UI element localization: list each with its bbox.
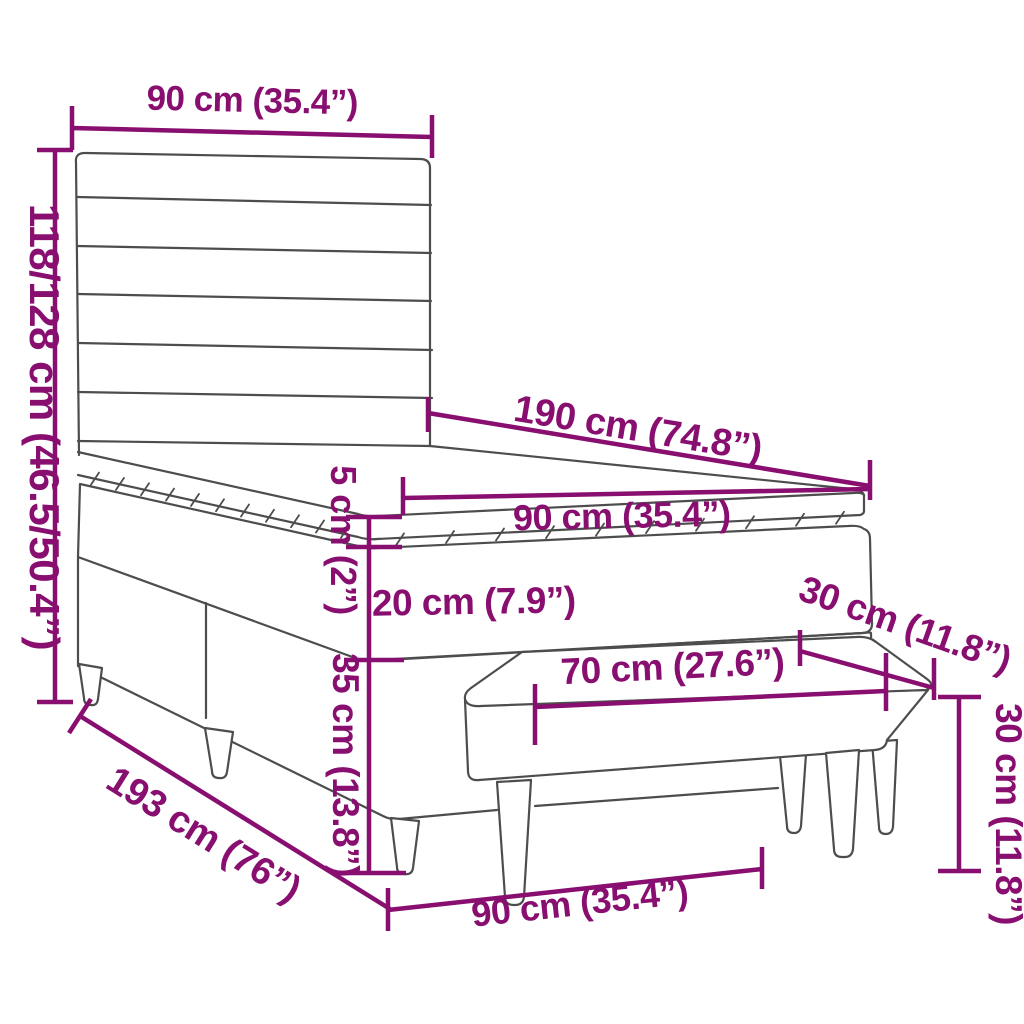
label-headboard-height: 118/128 cm (46.5/50.4”) [21,204,68,650]
bench-front-leg-right [826,750,859,857]
bench-front-leg-left [497,780,531,905]
label-bench-total-length: 90 cm (35.4”) [469,870,690,934]
bed-leg-middle [205,728,233,778]
label-topper-height: 5 cm (2”) [323,465,364,615]
label-bed-width: 90 cm (35.4”) [513,493,731,539]
topper-far-edge [430,446,864,495]
label-frame-length: 193 cm (76”) [99,759,308,911]
headboard-slats [77,197,432,446]
diagram-svg: 90 cm (35.4”) 118/128 cm (46.5/50.4”) 19… [0,0,1024,1024]
dimension-diagram: 90 cm (35.4”) 118/128 cm (46.5/50.4”) 19… [0,0,1024,1024]
bed-leg-corner [391,818,419,874]
base-bottom-foot-edge [535,788,778,806]
bench-back-leg-right [872,740,897,834]
label-headboard-width: 90 cm (35.4”) [146,79,358,123]
label-bench-height: 30 cm (11.8”) [988,703,1024,925]
dim-line-bench-height [938,697,981,871]
bench-back-leg-middle [780,754,806,833]
label-base-height: 35 cm (13.8”) [325,653,366,877]
label-mattress-height: 20 cm (7.9”) [372,579,576,624]
